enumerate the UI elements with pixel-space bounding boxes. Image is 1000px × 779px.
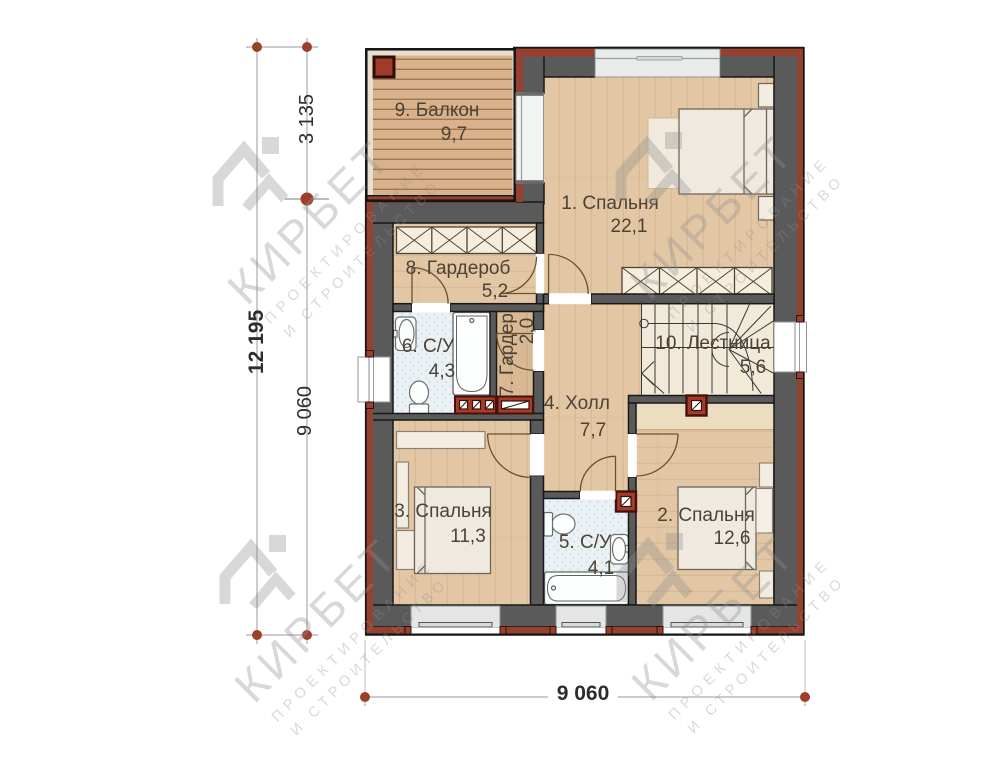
svg-text:3. Спальня: 3. Спальня	[394, 501, 491, 522]
svg-text:8. Гардероб: 8. Гардероб	[406, 258, 511, 279]
svg-text:5. С/У: 5. С/У	[559, 532, 612, 553]
svg-text:7,7: 7,7	[580, 420, 606, 441]
svg-text:9 060: 9 060	[557, 682, 610, 705]
svg-text:9,7: 9,7	[441, 124, 467, 145]
svg-text:11,3: 11,3	[450, 526, 486, 547]
svg-text:4,3: 4,3	[429, 361, 455, 382]
svg-text:10. Лестница: 10. Лестница	[655, 333, 771, 354]
svg-text:4. Холл: 4. Холл	[544, 393, 610, 414]
svg-text:7. Гардер.: 7. Гардер.	[497, 308, 518, 397]
svg-text:5,2: 5,2	[482, 281, 508, 302]
svg-text:6. С/У: 6. С/У	[402, 336, 455, 357]
svg-text:5,6: 5,6	[740, 357, 766, 378]
svg-text:3 135: 3 135	[296, 94, 318, 144]
svg-text:22,1: 22,1	[611, 216, 648, 237]
svg-text:1. Спальня: 1. Спальня	[561, 193, 658, 214]
svg-text:12,6: 12,6	[714, 528, 751, 549]
svg-text:2. Спальня: 2. Спальня	[657, 505, 754, 526]
svg-text:9 060: 9 060	[294, 386, 316, 436]
svg-text:9. Балкон: 9. Балкон	[395, 100, 480, 121]
svg-text:2,0: 2,0	[517, 318, 538, 344]
svg-text:4,1: 4,1	[588, 558, 614, 579]
